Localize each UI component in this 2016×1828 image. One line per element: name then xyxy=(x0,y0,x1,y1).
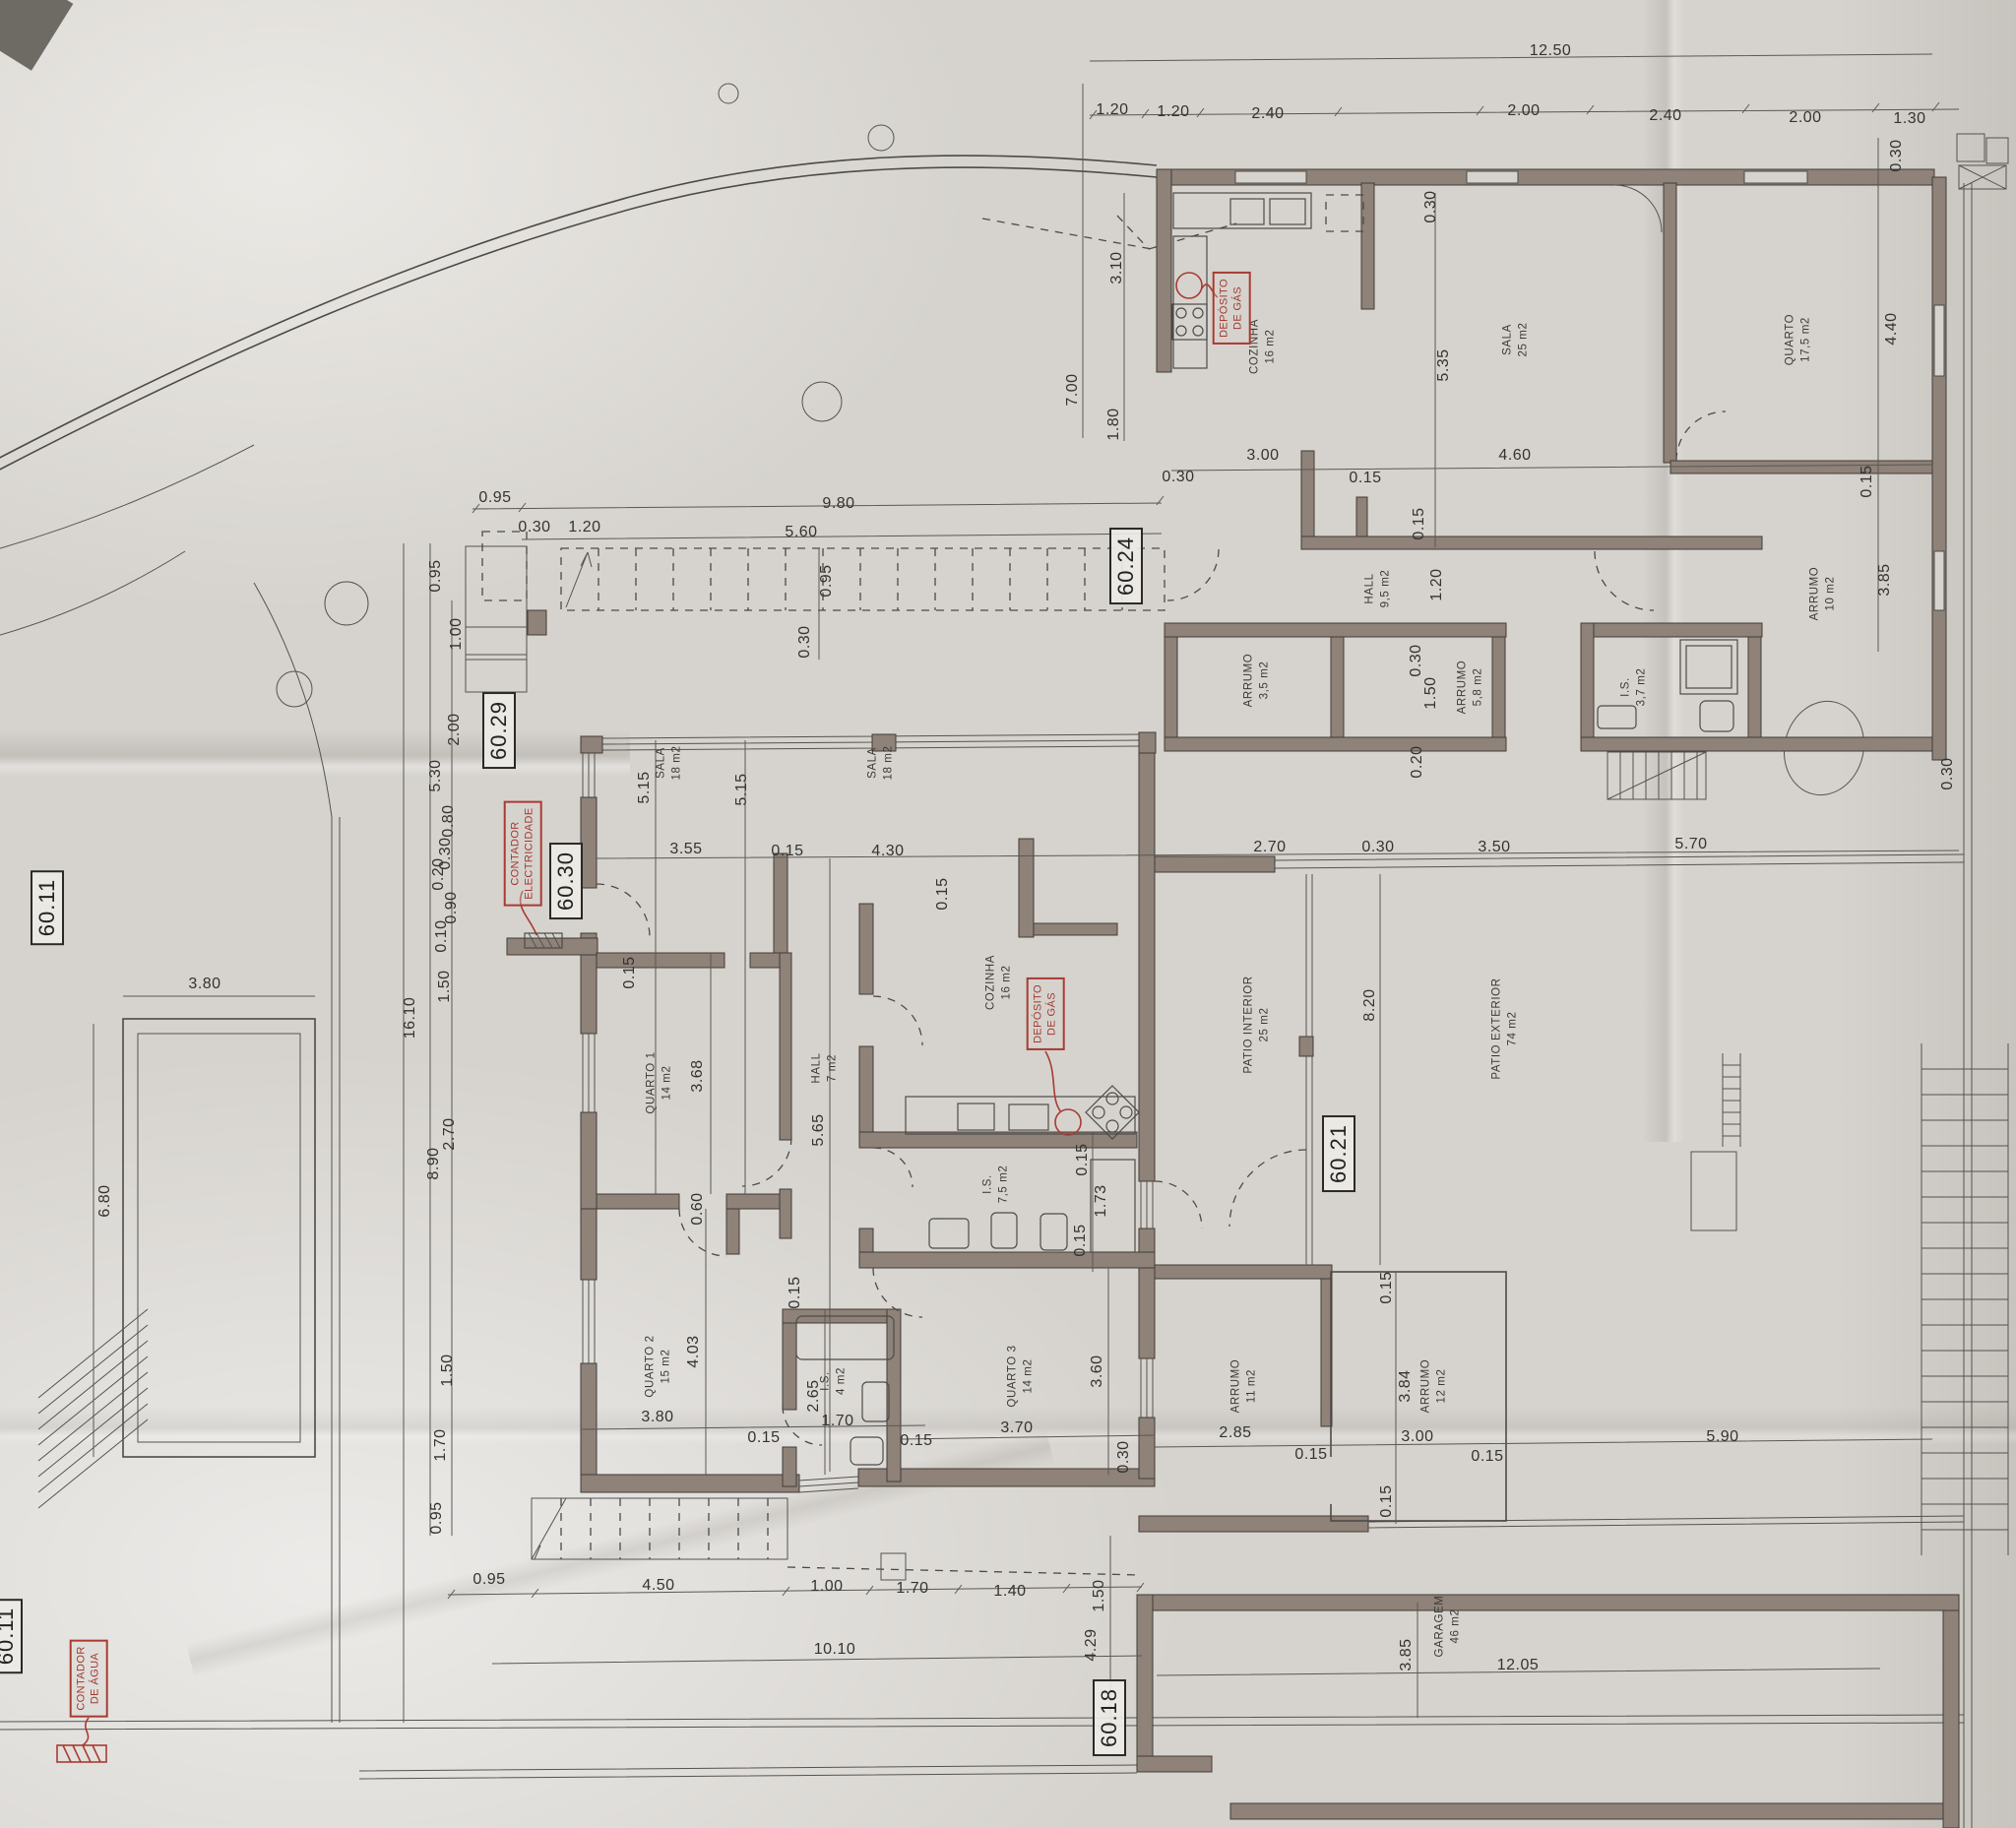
dimension-label: 1.50 xyxy=(1091,1579,1108,1611)
room-label: ARRUMO10 m2 xyxy=(1807,567,1838,621)
level-marker: 60.11 xyxy=(0,1599,23,1673)
dimension-label: 0.15 xyxy=(1858,465,1876,497)
dimension-label: 0.10 xyxy=(433,919,451,952)
dimension-label: 1.70 xyxy=(821,1413,853,1430)
dimension-label: 9.80 xyxy=(822,495,854,513)
dimension-label: 2.00 xyxy=(1507,102,1540,120)
dimension-label: 3.10 xyxy=(1108,251,1126,284)
dimension-label: 5.65 xyxy=(810,1113,828,1146)
utility-annotation: DEPÓSITODE GÁS xyxy=(1213,272,1251,345)
dimension-label: 5.60 xyxy=(785,524,817,541)
dimension-label: 2.85 xyxy=(1219,1424,1251,1442)
dimension-label: 0.15 xyxy=(771,843,803,860)
dimension-label: 8.20 xyxy=(1361,988,1379,1021)
dimension-label: 4.30 xyxy=(871,843,904,860)
room-label: ARRUMO3,5 m2 xyxy=(1241,654,1272,708)
utility-annotation: DEPÓSITODE GÁS xyxy=(1027,977,1065,1050)
utility-annotation: CONTADORDE ÁGUA xyxy=(70,1639,108,1717)
dimension-label: 1.20 xyxy=(568,519,600,536)
room-label: SALA18 m2 xyxy=(865,746,896,781)
upper-building-walls xyxy=(1157,169,1946,760)
room-label: SALA25 m2 xyxy=(1500,323,1531,357)
level-marker: 60.30 xyxy=(549,843,583,919)
dimension-label: 0.30 xyxy=(518,519,550,536)
dimension-label: 2.70 xyxy=(441,1117,459,1150)
dimension-label: 5.35 xyxy=(1435,348,1453,381)
room-label: COZINHA16 m2 xyxy=(983,955,1014,1010)
dimension-label: 5.15 xyxy=(733,773,751,805)
utility-annotation: CONTADORELECTRICIDADE xyxy=(504,800,542,906)
dimension-label: 0.15 xyxy=(1378,1484,1396,1517)
dimension-label: 0.15 xyxy=(1411,507,1428,539)
dimension-label: 12.50 xyxy=(1530,42,1572,60)
south-steps xyxy=(532,1498,906,1580)
room-label: QUARTO 215 m2 xyxy=(643,1335,673,1397)
dimension-label: 0.15 xyxy=(621,956,639,988)
dimension-label: 0.15 xyxy=(1072,1224,1090,1256)
room-label: HALL7 m2 xyxy=(809,1052,840,1083)
dimension-label: 3.68 xyxy=(689,1059,707,1092)
dimension-label: 4.60 xyxy=(1498,447,1531,465)
water-meter-symbol xyxy=(57,1718,106,1762)
dimension-label: 0.30 xyxy=(1361,839,1394,856)
pool xyxy=(123,1019,315,1457)
dimension-label: 3.80 xyxy=(188,976,220,993)
dimension-label: 1.50 xyxy=(1422,676,1440,709)
dimension-label: 0.15 xyxy=(747,1429,780,1447)
dimension-label: 3.85 xyxy=(1398,1638,1416,1670)
dimension-label: 0.15 xyxy=(1471,1448,1503,1466)
dimension-label: 4.29 xyxy=(1083,1628,1101,1661)
dimension-label: 4.40 xyxy=(1883,312,1901,345)
dimension-label: 1.00 xyxy=(448,617,466,650)
dimension-label: 1.00 xyxy=(810,1578,843,1596)
gas-tank-symbol-upper xyxy=(1176,273,1218,298)
room-label: ARRUMO12 m2 xyxy=(1418,1359,1449,1414)
dimension-label: 1.20 xyxy=(1096,101,1128,119)
plan-linework: .wall{fill:#8e8279;stroke:#413c37;stroke… xyxy=(0,0,2016,1828)
room-label: I.S.4 m2 xyxy=(818,1367,849,1395)
dimension-label: 0.15 xyxy=(1074,1143,1092,1175)
dimension-label: 7.00 xyxy=(1064,373,1082,406)
dimension-label: 0.80 xyxy=(440,804,458,837)
dimension-label: 0.30 xyxy=(1115,1440,1133,1473)
dimension-label: 1.20 xyxy=(1157,103,1189,121)
dimension-label: 0.15 xyxy=(1378,1271,1396,1303)
stove-upper xyxy=(1172,304,1207,340)
dimension-label: 1.20 xyxy=(1428,568,1446,600)
dimension-label: 5.90 xyxy=(1706,1428,1738,1446)
dimension-label: 0.30 xyxy=(796,625,814,658)
dimension-label: 0.30 xyxy=(1162,469,1194,486)
dimension-label: 3.00 xyxy=(1246,447,1279,465)
room-label: I.S.3,7 m2 xyxy=(1618,668,1649,707)
dimension-label: 1.50 xyxy=(439,1354,457,1386)
dimension-label: 3.80 xyxy=(641,1409,673,1426)
dimension-label: 0.20 xyxy=(1409,745,1426,778)
dimension-label: 2.70 xyxy=(1253,839,1286,856)
room-label: COZINHA16 m2 xyxy=(1247,319,1278,374)
dimension-label: 3.55 xyxy=(669,841,702,858)
dimension-label: 0.95 xyxy=(428,1501,446,1534)
dimension-label: 0.60 xyxy=(689,1192,707,1225)
dimension-label: 0.15 xyxy=(900,1432,932,1450)
dimension-label: 1.70 xyxy=(432,1428,450,1461)
upper-stairs xyxy=(1607,752,1706,799)
dimension-label: 5.30 xyxy=(427,759,445,791)
dimension-label: 0.30 xyxy=(1408,644,1425,676)
dimension-label: 12.05 xyxy=(1497,1657,1540,1674)
dimension-label: 5.15 xyxy=(636,771,654,803)
entrance-steps xyxy=(466,532,592,692)
dimension-label: 3.84 xyxy=(1397,1369,1415,1402)
dimension-label: 1.50 xyxy=(436,970,454,1002)
dimension-label: 0.15 xyxy=(1349,470,1381,487)
boundary-hatches xyxy=(1691,134,2008,1555)
dimension-label: 8.90 xyxy=(425,1147,443,1179)
level-marker: 60.21 xyxy=(1322,1115,1355,1192)
room-label: I.S.7,5 m2 xyxy=(980,1166,1011,1204)
stove-lower xyxy=(1086,1086,1139,1139)
pergola-dashed xyxy=(561,548,1165,610)
dimension-label: 3.00 xyxy=(1401,1428,1433,1446)
dimension-label: 1.40 xyxy=(993,1583,1026,1601)
dimension-label: 0.95 xyxy=(427,559,445,592)
gas-bottle-symbol-lower xyxy=(1045,1051,1081,1135)
room-label: QUARTO 314 m2 xyxy=(1005,1345,1036,1407)
dimension-label: 0.30 xyxy=(1888,139,1906,171)
dimension-label: 0.30 xyxy=(1939,757,1957,789)
dimension-label: 1.80 xyxy=(1105,408,1123,440)
room-label: QUARTO 114 m2 xyxy=(644,1051,674,1113)
dimension-label: 2.00 xyxy=(446,713,464,745)
dimension-label: 5.70 xyxy=(1674,836,1707,853)
dimension-label: 0.15 xyxy=(787,1276,804,1308)
dimension-label: 2.40 xyxy=(1251,105,1284,123)
kitchen-fixtures-lower xyxy=(906,1086,1139,1139)
room-label: ARRUMO5,8 m2 xyxy=(1455,661,1485,715)
room-label: SALA18 m2 xyxy=(654,746,684,781)
dimension-label: 3.70 xyxy=(1000,1419,1033,1437)
room-label: QUARTO17,5 m2 xyxy=(1783,314,1813,365)
dimension-label: 2.00 xyxy=(1789,109,1821,127)
dimension-label: 3.60 xyxy=(1089,1355,1106,1387)
garage-walls xyxy=(1137,1595,1959,1828)
dimension-label: 3.85 xyxy=(1876,563,1894,596)
dimension-label: 1.70 xyxy=(896,1580,928,1598)
dimension-label: 0.15 xyxy=(934,877,952,910)
room-label: HALL9,5 m2 xyxy=(1362,570,1393,608)
level-marker: 60.29 xyxy=(482,692,516,769)
dimension-label: 1.30 xyxy=(1893,110,1925,128)
floor-plan-sheet: .wall{fill:#8e8279;stroke:#413c37;stroke… xyxy=(0,0,2016,1828)
dimension-label: 0.20 xyxy=(430,857,448,890)
dimension-label: 3.50 xyxy=(1478,839,1510,856)
room-label: ARRUMO11 m2 xyxy=(1228,1359,1259,1414)
room-label: GARAGEM46 m2 xyxy=(1432,1596,1463,1658)
dimension-label: 6.80 xyxy=(96,1184,114,1217)
level-marker: 60.24 xyxy=(1109,528,1143,604)
dimension-label: 0.95 xyxy=(818,564,836,597)
dimension-label: 0.95 xyxy=(478,489,511,507)
dimension-label: 4.50 xyxy=(642,1577,674,1595)
steps-dashed xyxy=(482,532,527,600)
level-marker: 60.18 xyxy=(1093,1679,1126,1756)
dimension-label: 4.03 xyxy=(685,1335,703,1367)
dimension-label: 10.10 xyxy=(814,1641,856,1659)
door-arcs xyxy=(597,185,1726,1445)
room-label: PATIO INTERIOR25 m2 xyxy=(1241,976,1272,1073)
dimension-label: 0.95 xyxy=(472,1571,505,1589)
dimension-label: 0.30 xyxy=(1422,190,1440,222)
dimension-label: 0.15 xyxy=(1294,1446,1327,1464)
dimension-label: 2.40 xyxy=(1649,107,1681,125)
dimension-label: 1.73 xyxy=(1093,1184,1110,1217)
level-marker: 60.11 xyxy=(31,870,64,945)
room-label: PATIO EXTERIOR74 m2 xyxy=(1489,977,1520,1079)
dimension-label: 16.10 xyxy=(402,997,419,1040)
